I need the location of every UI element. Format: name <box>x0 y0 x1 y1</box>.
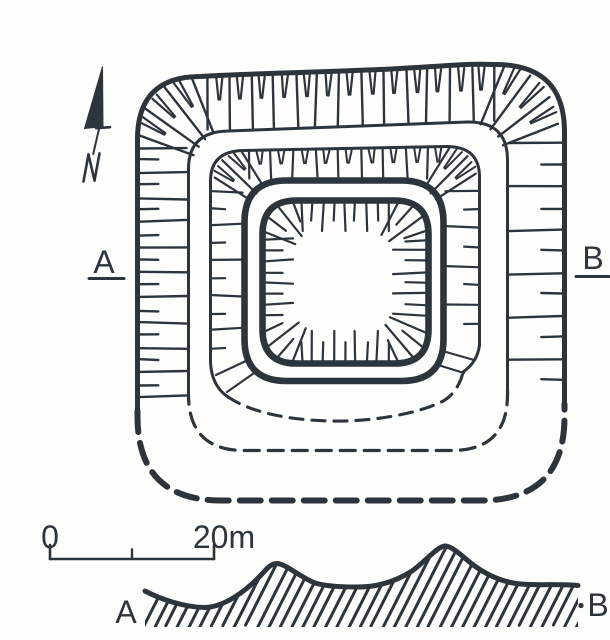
svg-text:A: A <box>93 244 115 280</box>
svg-text:B: B <box>587 587 608 623</box>
svg-text:A: A <box>115 594 137 630</box>
svg-text:20m: 20m <box>193 519 255 555</box>
svg-text:0: 0 <box>41 519 59 555</box>
svg-text:B: B <box>582 240 603 276</box>
